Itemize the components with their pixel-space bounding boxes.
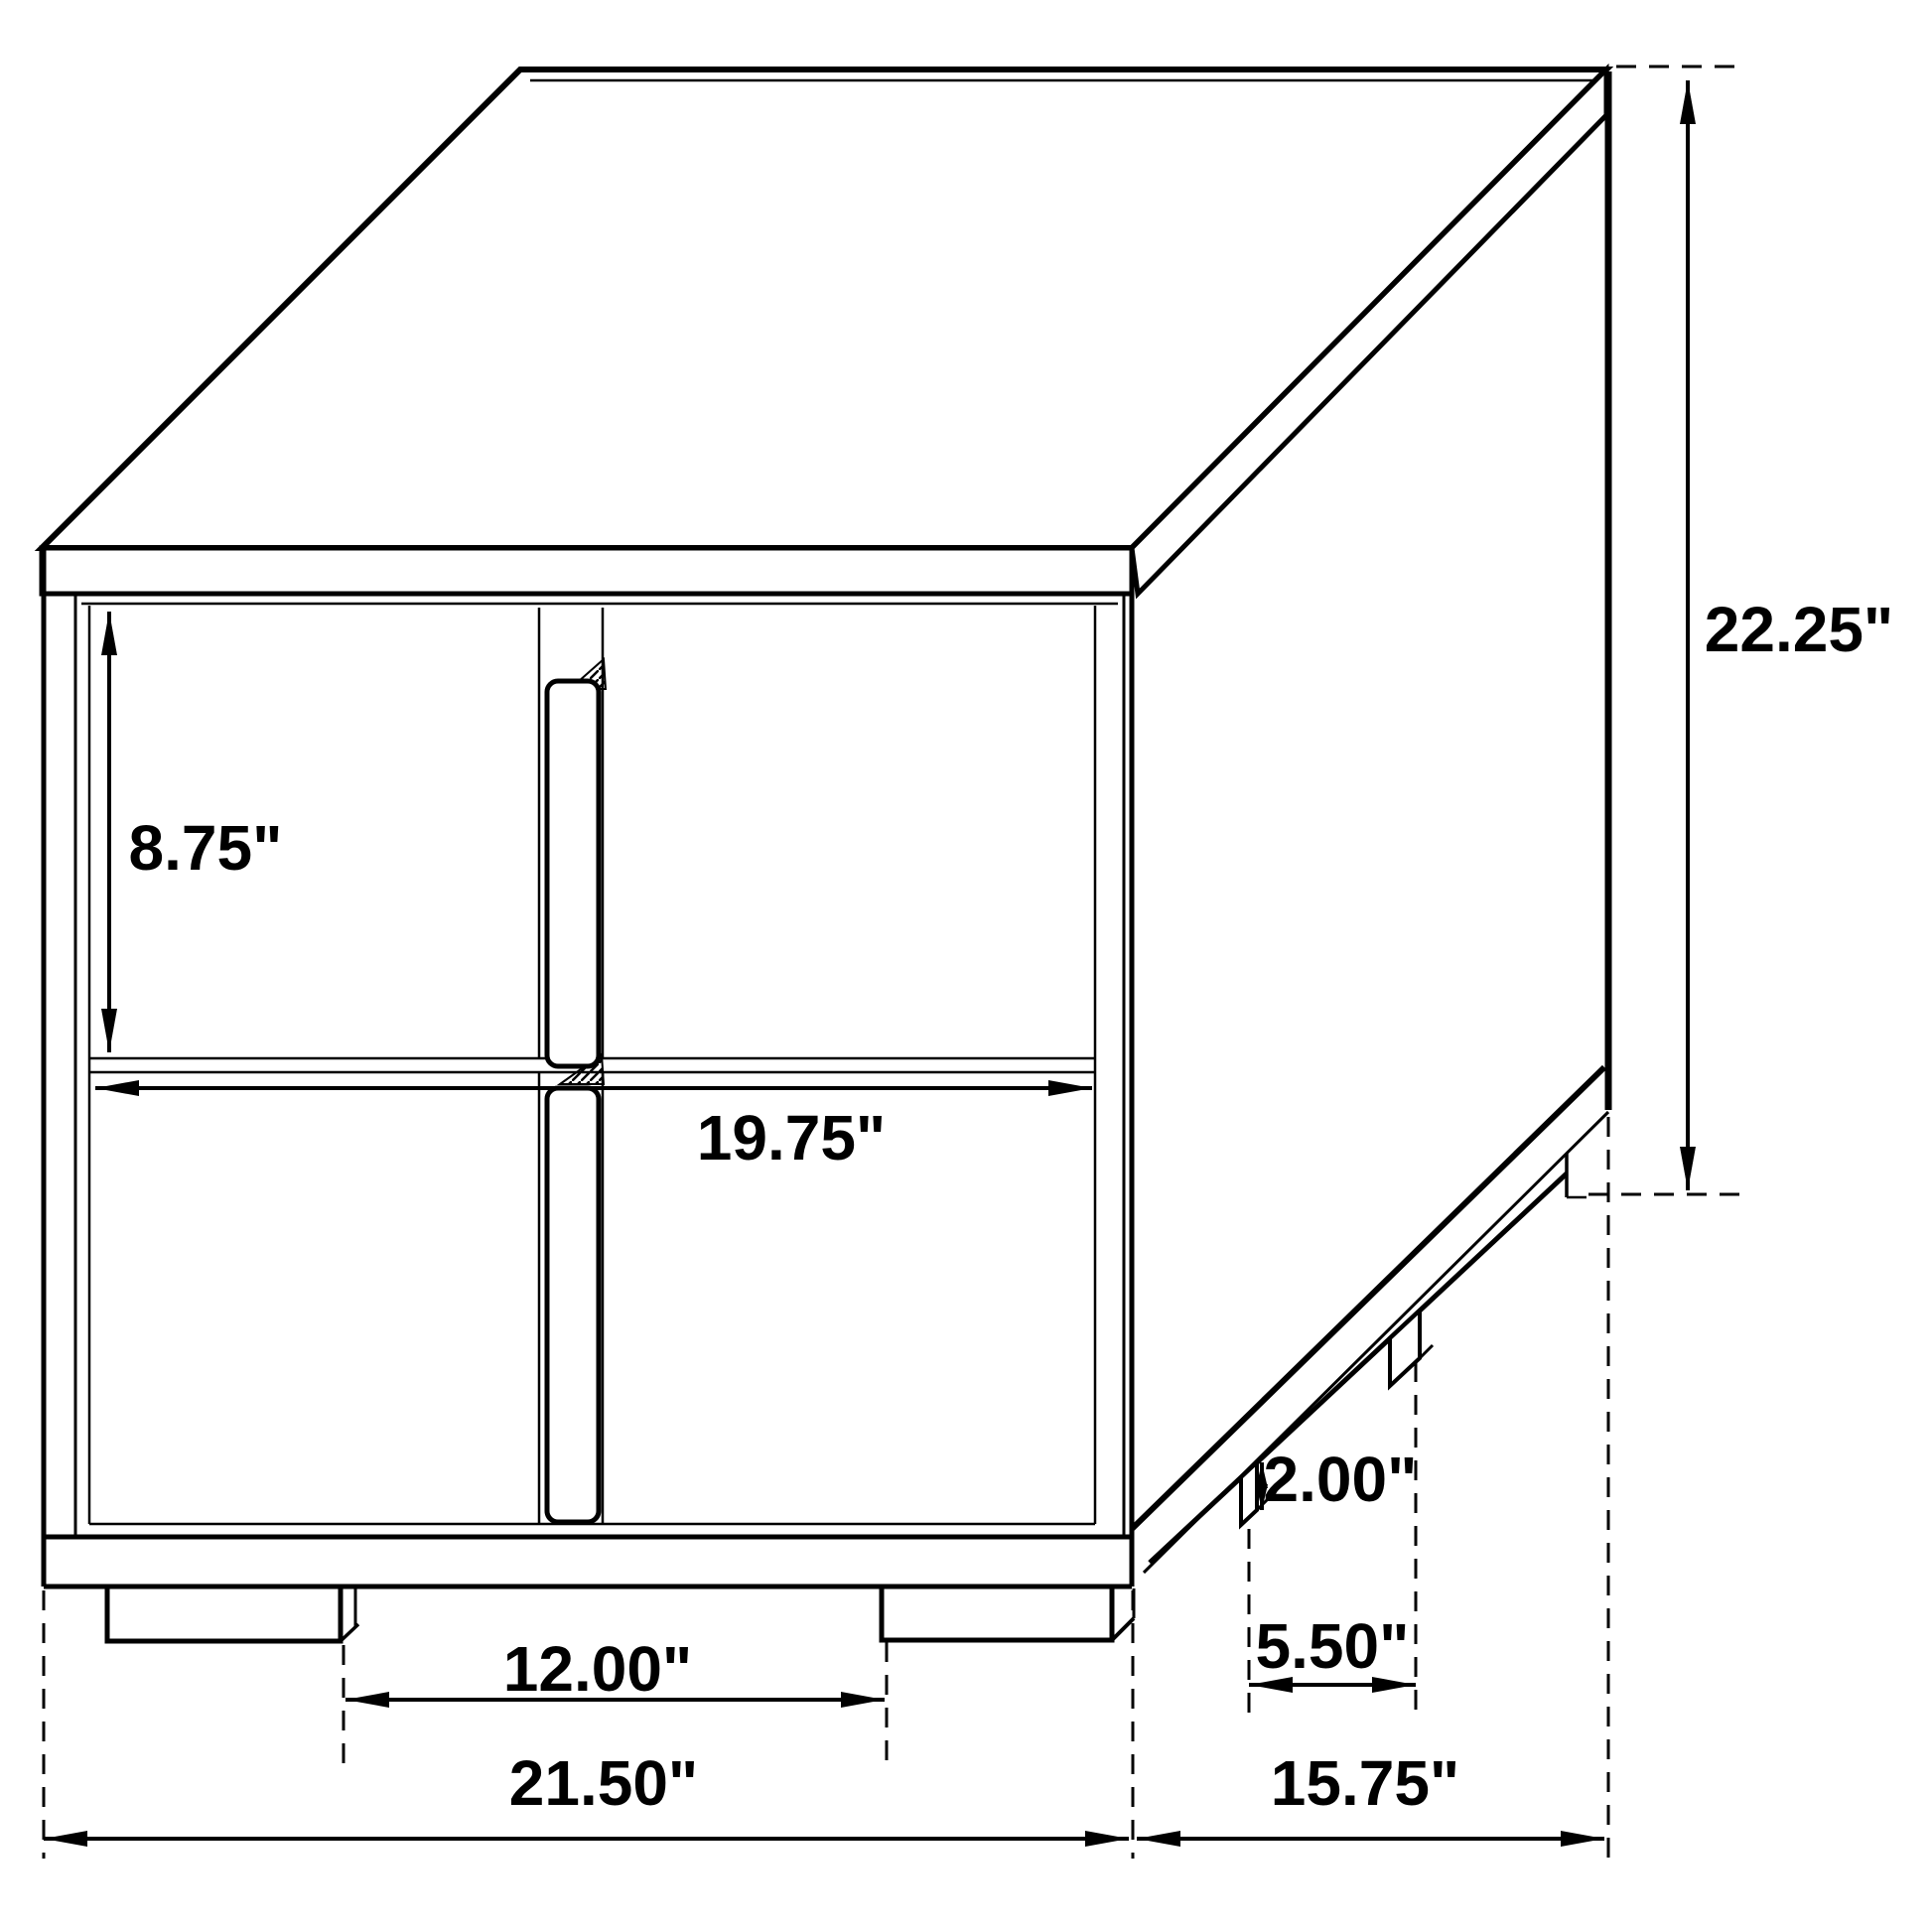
drawer-handles: [547, 659, 606, 1522]
upper-drawer-handle: [547, 681, 599, 1066]
label-front-leg-spacing: 12.00": [503, 1633, 693, 1705]
label-drawer-width: 19.75": [697, 1102, 887, 1173]
page: 8.75" 19.75" 22.25" 2.00" 5.50" 12.00" 2…: [0, 0, 1932, 1932]
front-right-leg: [882, 1587, 1112, 1640]
front-left-leg: [107, 1587, 341, 1641]
nightstand-dimension-diagram: 8.75" 19.75" 22.25" 2.00" 5.50" 12.00" 2…: [0, 0, 1932, 1932]
label-overall-depth: 15.75": [1271, 1747, 1460, 1819]
label-overall-height: 22.25": [1705, 594, 1894, 665]
label-leg-height: 2.00": [1264, 1444, 1418, 1515]
label-side-leg-spacing: 5.50": [1256, 1610, 1410, 1682]
top-slab-front-band: [42, 548, 1132, 594]
label-overall-width: 21.50": [509, 1747, 699, 1819]
top-slab: [42, 69, 1606, 594]
front-left-leg-bevel: [341, 1624, 358, 1641]
lower-drawer-handle: [547, 1088, 599, 1522]
label-drawer-height: 8.75": [129, 812, 283, 884]
front-right-leg-bevel: [1112, 1618, 1134, 1640]
